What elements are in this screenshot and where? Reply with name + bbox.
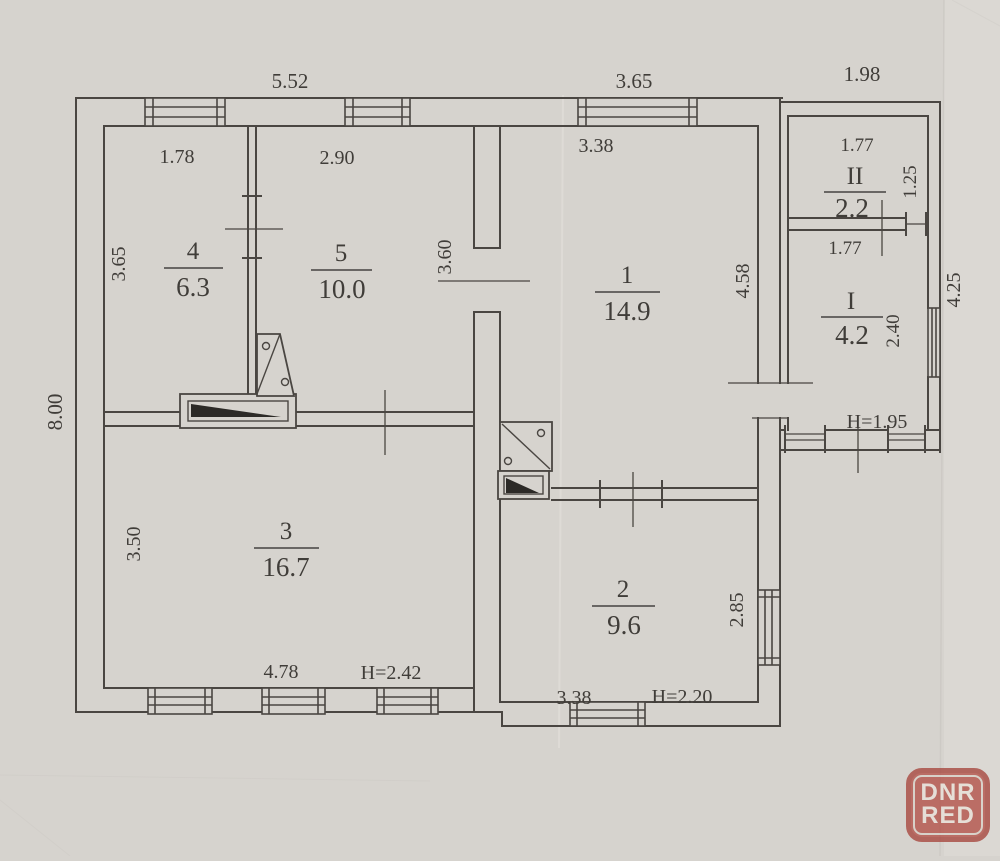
window-icon <box>148 688 212 714</box>
dim-top-198: 1.98 <box>844 62 881 86</box>
roomII-top-width: 1.77 <box>840 135 873 156</box>
room2-right-height: 2.85 <box>726 593 748 628</box>
watermark-dnr-red: DNR RED <box>906 768 990 842</box>
roomI-top-width: 1.77 <box>828 238 861 259</box>
stove-icon <box>500 422 552 471</box>
room2-bottom-width: 3.38 <box>557 687 592 709</box>
dim-left-800: 8.00 <box>43 394 67 431</box>
room5-number: 5 <box>335 240 348 267</box>
room4-top-width: 1.78 <box>160 146 195 168</box>
floor-plan-drawing: 5.52 3.65 1.98 8.00 4.25 1.78 3.65 4 6.3… <box>0 0 1000 856</box>
window-icon <box>262 688 325 714</box>
dim-top-365: 3.65 <box>616 69 653 93</box>
room1-top-width: 3.38 <box>579 135 614 157</box>
room1-number: 1 <box>621 262 634 289</box>
window-icon <box>758 590 780 665</box>
window-icon <box>145 98 225 126</box>
room3-number: 3 <box>280 518 293 545</box>
room2-number: 2 <box>617 576 630 603</box>
flue-vent-icon <box>498 471 549 499</box>
room4-area: 6.3 <box>176 272 210 302</box>
roomI-area: 4.2 <box>835 320 869 350</box>
room3-area: 16.7 <box>262 552 309 582</box>
dim-top-552: 5.52 <box>272 69 309 93</box>
roomII-area: 2.2 <box>835 193 869 223</box>
roomII-right-height: 1.25 <box>900 165 921 198</box>
room4-left-height: 3.65 <box>108 247 130 282</box>
watermark-text: DNR RED <box>913 775 983 835</box>
room2-ceiling-height: H=2.20 <box>652 686 713 708</box>
floor-plan: 5.52 3.65 1.98 8.00 4.25 1.78 3.65 4 6.3… <box>0 0 1000 856</box>
roomI-ceiling-height: H=1.95 <box>847 411 908 433</box>
watermark-line2: RED <box>921 805 975 828</box>
room3-ceiling-height: H=2.42 <box>361 662 422 684</box>
room3-left-height: 3.50 <box>123 527 145 562</box>
room4-number: 4 <box>187 238 200 265</box>
room5-right-height: 3.60 <box>434 240 456 275</box>
room5-top-width: 2.90 <box>320 147 355 169</box>
room3-bottom-width: 4.78 <box>264 661 299 683</box>
window-icon <box>377 688 438 714</box>
roomI-number: I <box>847 288 855 315</box>
dim-porch-425: 4.25 <box>943 273 965 308</box>
room1-area: 14.9 <box>603 296 650 326</box>
flue-vent-icon <box>180 394 296 428</box>
room1-right-height: 4.58 <box>732 264 754 299</box>
window-icon <box>578 98 697 126</box>
room2-area: 9.6 <box>607 610 641 640</box>
window-icon <box>345 98 410 126</box>
room5-area: 10.0 <box>318 274 365 304</box>
roomII-number: II <box>847 163 864 190</box>
roomI-right-height: 2.40 <box>883 314 904 347</box>
window-icon <box>928 308 940 377</box>
